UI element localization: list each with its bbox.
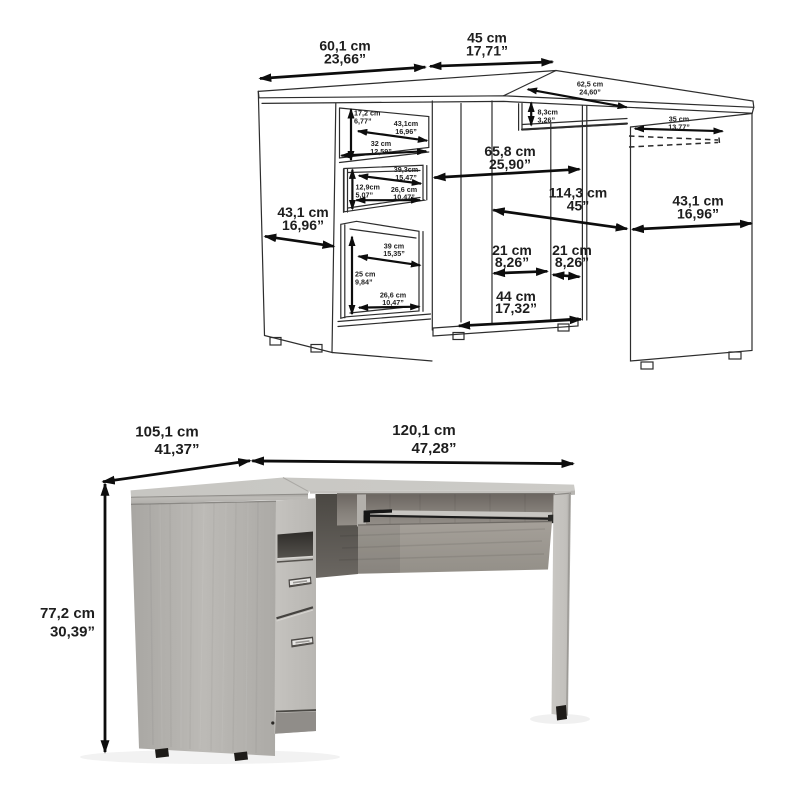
svg-text:12,59”: 12,59”: [370, 147, 392, 156]
svg-text:41,37”: 41,37”: [154, 441, 199, 458]
svg-text:24,60”: 24,60”: [579, 88, 601, 97]
svg-text:10,47”: 10,47”: [393, 193, 415, 202]
svg-text:105,1 cm: 105,1 cm: [135, 424, 198, 441]
svg-text:45”: 45”: [567, 198, 590, 214]
svg-text:13,77”: 13,77”: [668, 123, 690, 132]
svg-text:30,39”: 30,39”: [50, 624, 95, 641]
svg-text:9,84”: 9,84”: [355, 278, 373, 287]
svg-text:6,77”: 6,77”: [354, 117, 372, 126]
svg-text:8,26”: 8,26”: [555, 254, 589, 270]
svg-text:3,26”: 3,26”: [538, 116, 556, 125]
svg-text:120,1 cm: 120,1 cm: [392, 422, 455, 439]
svg-text:47,28”: 47,28”: [411, 440, 456, 457]
svg-text:17,32”: 17,32”: [495, 300, 537, 316]
svg-text:17,71”: 17,71”: [466, 43, 508, 59]
svg-text:23,66”: 23,66”: [324, 51, 366, 67]
svg-text:77,2 cm: 77,2 cm: [40, 605, 95, 622]
svg-text:10,47”: 10,47”: [382, 298, 404, 307]
svg-text:16,96”: 16,96”: [677, 206, 719, 222]
svg-text:25,90”: 25,90”: [489, 156, 531, 172]
svg-text:16,96”: 16,96”: [395, 127, 417, 136]
svg-text:16,96”: 16,96”: [282, 217, 324, 233]
svg-text:8,26”: 8,26”: [495, 254, 529, 270]
svg-text:15,35”: 15,35”: [383, 249, 405, 258]
svg-text:15,47”: 15,47”: [395, 173, 417, 182]
svg-text:5,07”: 5,07”: [356, 191, 374, 200]
